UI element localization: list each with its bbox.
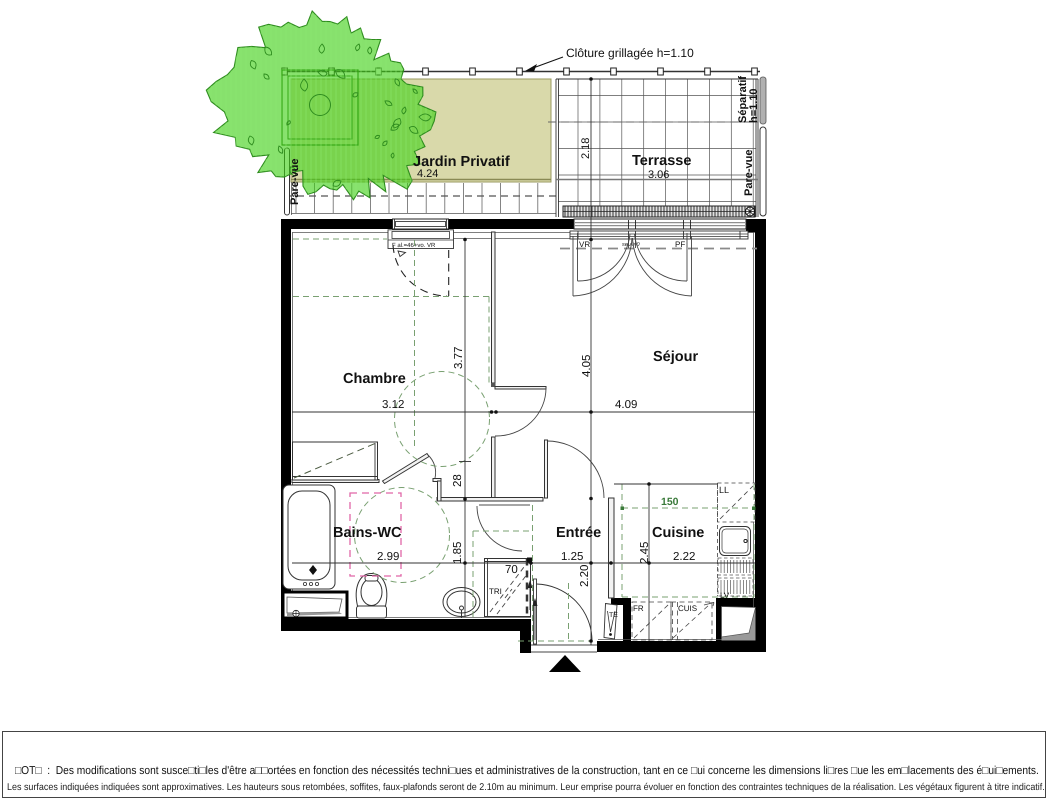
svg-text:2.45: 2.45 bbox=[639, 542, 651, 564]
svg-text:2.18: 2.18 bbox=[580, 138, 592, 159]
svg-text:2.20: 2.20 bbox=[579, 565, 591, 587]
svg-text:1.85: 1.85 bbox=[452, 542, 464, 564]
svg-text:2.22: 2.22 bbox=[673, 551, 695, 563]
svg-text:Bains-WC: Bains-WC bbox=[333, 525, 402, 541]
svg-text:2.99: 2.99 bbox=[377, 551, 399, 563]
svg-text:Pare-vue: Pare-vue bbox=[289, 159, 301, 205]
svg-text:Séjour: Séjour bbox=[653, 349, 698, 365]
svg-text:70: 70 bbox=[505, 564, 518, 576]
svg-text:Entrée: Entrée bbox=[556, 525, 601, 541]
svg-text:28: 28 bbox=[452, 474, 464, 487]
svg-text:TRI: TRI bbox=[489, 587, 502, 596]
svg-text:Cuisine: Cuisine bbox=[652, 525, 704, 541]
svg-text:3.12: 3.12 bbox=[382, 399, 404, 411]
svg-text:h=1.10: h=1.10 bbox=[748, 88, 760, 123]
svg-text:1.25: 1.25 bbox=[561, 551, 583, 563]
svg-text:4.05: 4.05 bbox=[581, 355, 593, 377]
svg-text:LL: LL bbox=[719, 485, 729, 495]
svg-text:Chambre: Chambre bbox=[343, 371, 406, 387]
svg-text:3.06: 3.06 bbox=[648, 169, 669, 181]
svg-text:FR: FR bbox=[633, 604, 644, 613]
svg-text:LV: LV bbox=[720, 591, 730, 600]
svg-text:Pare-vue: Pare-vue bbox=[743, 150, 755, 196]
svg-text:4.09: 4.09 bbox=[615, 399, 637, 411]
svg-text:Terrasse: Terrasse bbox=[632, 153, 691, 169]
svg-text:CUIS: CUIS bbox=[678, 604, 697, 613]
svg-text:150: 150 bbox=[661, 496, 679, 508]
svg-text:TE: TE bbox=[609, 612, 618, 619]
svg-text:Clôture grillagée h=1.10: Clôture grillagée h=1.10 bbox=[566, 46, 694, 60]
svg-text:4.24: 4.24 bbox=[417, 168, 438, 180]
svg-text:3.77: 3.77 bbox=[453, 347, 465, 369]
